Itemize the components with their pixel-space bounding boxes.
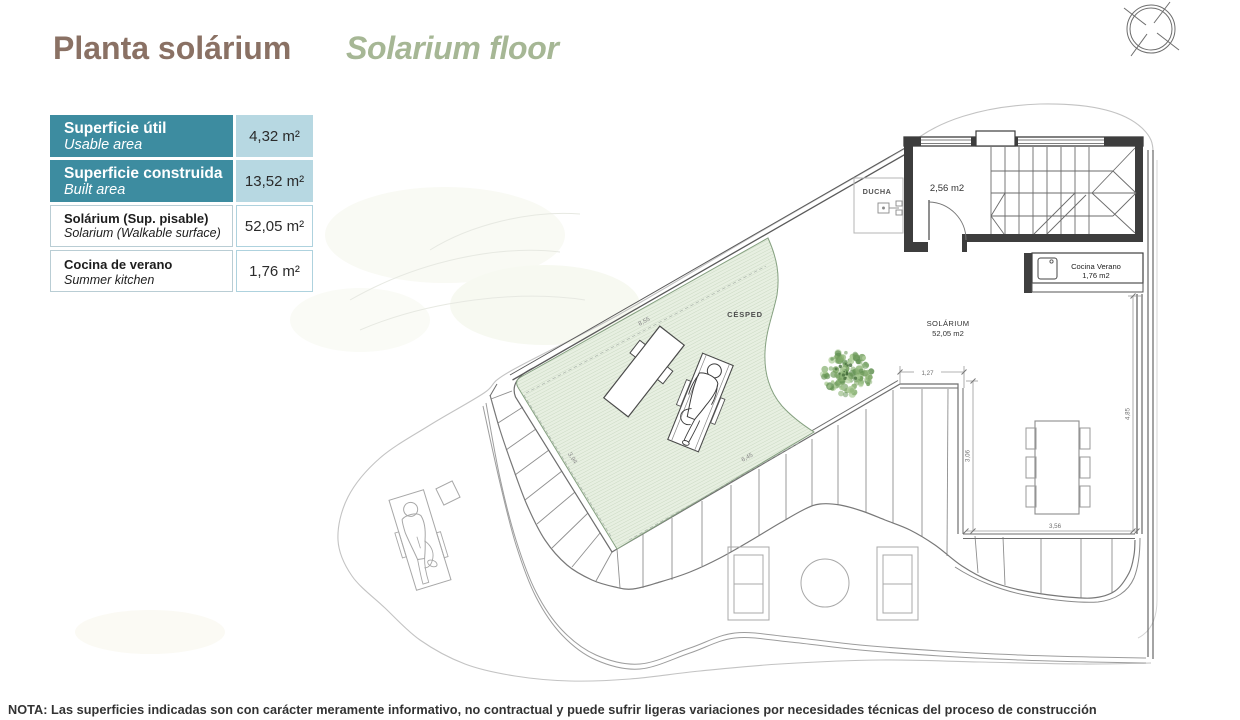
svg-text:3,56: 3,56 — [1049, 523, 1062, 530]
svg-text:1,27: 1,27 — [921, 370, 934, 377]
svg-text:3,06: 3,06 — [965, 449, 972, 462]
svg-text:52,05 m2: 52,05 m2 — [932, 329, 964, 338]
svg-text:4,85: 4,85 — [1125, 407, 1132, 420]
svg-text:1,76 m2: 1,76 m2 — [1082, 271, 1109, 280]
svg-text:SOLÁRIUM: SOLÁRIUM — [927, 319, 970, 328]
svg-text:CÉSPED: CÉSPED — [727, 310, 763, 319]
svg-text:2,56 m2: 2,56 m2 — [930, 183, 964, 194]
svg-text:DUCHA: DUCHA — [863, 187, 892, 196]
svg-text:Cocina Verano: Cocina Verano — [1071, 262, 1121, 271]
